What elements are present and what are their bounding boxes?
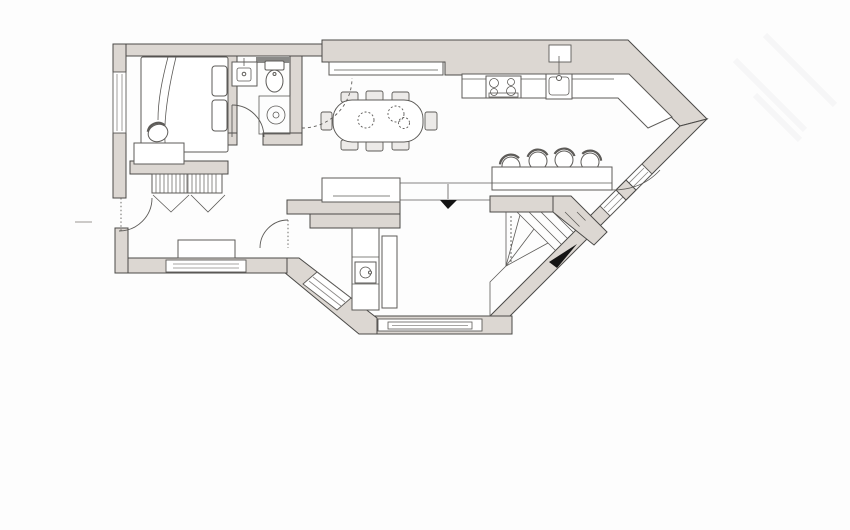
utility-door — [260, 220, 288, 248]
utility-sink — [355, 262, 376, 283]
shower — [259, 96, 290, 134]
floorplan-drawing — [0, 0, 850, 530]
bathroom-right-wall — [290, 56, 302, 145]
bathroom-bottom-wall-right — [263, 133, 302, 145]
entrance-arrow — [440, 184, 457, 209]
island-wall-lower — [310, 214, 400, 228]
dining-chair — [425, 112, 437, 130]
bar-counter — [492, 167, 612, 190]
entry-door — [119, 198, 152, 231]
bedroom-top-wall — [113, 44, 322, 56]
hall-window — [166, 260, 246, 272]
bedroom — [134, 57, 228, 212]
floorplan-page — [0, 0, 850, 530]
hall-left-wall — [115, 228, 128, 273]
island-cabinet — [322, 178, 400, 202]
watermark — [735, 35, 835, 140]
staircase — [490, 212, 586, 316]
washbasin — [232, 58, 257, 86]
hall-utility — [178, 178, 400, 310]
left-wall-top — [113, 44, 126, 72]
pillow — [212, 100, 227, 131]
dining-chair — [321, 112, 332, 130]
pillow — [212, 66, 227, 96]
left-wall-mid — [113, 133, 126, 198]
kitchen-wall-niche — [549, 45, 571, 62]
hall-bench — [178, 240, 235, 258]
wardrobe-door-mark — [153, 195, 189, 212]
wardrobe — [152, 174, 225, 212]
utility-cabinets — [352, 228, 397, 310]
cooktop — [486, 76, 521, 98]
dining-table — [333, 100, 423, 142]
tall-cabinet — [382, 236, 397, 308]
toilet — [265, 61, 284, 92]
wardrobe-door-mark — [191, 195, 225, 212]
dining-area — [321, 91, 437, 151]
bedroom-left-window — [113, 72, 126, 133]
bottom-window — [378, 319, 482, 331]
sideboard — [329, 62, 443, 75]
desk — [134, 143, 184, 164]
